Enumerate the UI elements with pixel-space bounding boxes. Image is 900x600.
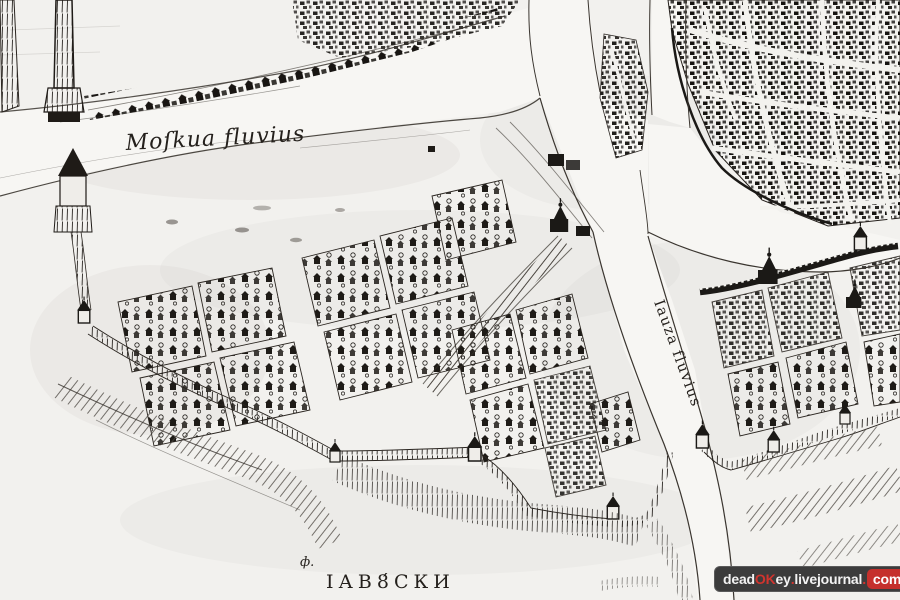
historic-map-page: Moſkua fluvius Iauza fluvius ІАВ8́СКИ ф.… [0, 0, 900, 600]
watermark-text: ey [776, 572, 791, 586]
watermark-domain: com [867, 569, 900, 589]
district-label: ІАВ8́СКИ [326, 571, 455, 593]
watermark: deadOKey.livejournal.com [714, 566, 900, 592]
watermark-text: livejournal [794, 572, 862, 586]
map-engraving: Moſkua fluvius Iauza fluvius ІАВ8́СКИ ф. [0, 0, 900, 600]
small-mark-label: ф. [300, 555, 314, 570]
watermark-text: . [862, 572, 866, 586]
watermark-text: dead [723, 572, 755, 586]
watermark-text: OK [755, 572, 776, 586]
